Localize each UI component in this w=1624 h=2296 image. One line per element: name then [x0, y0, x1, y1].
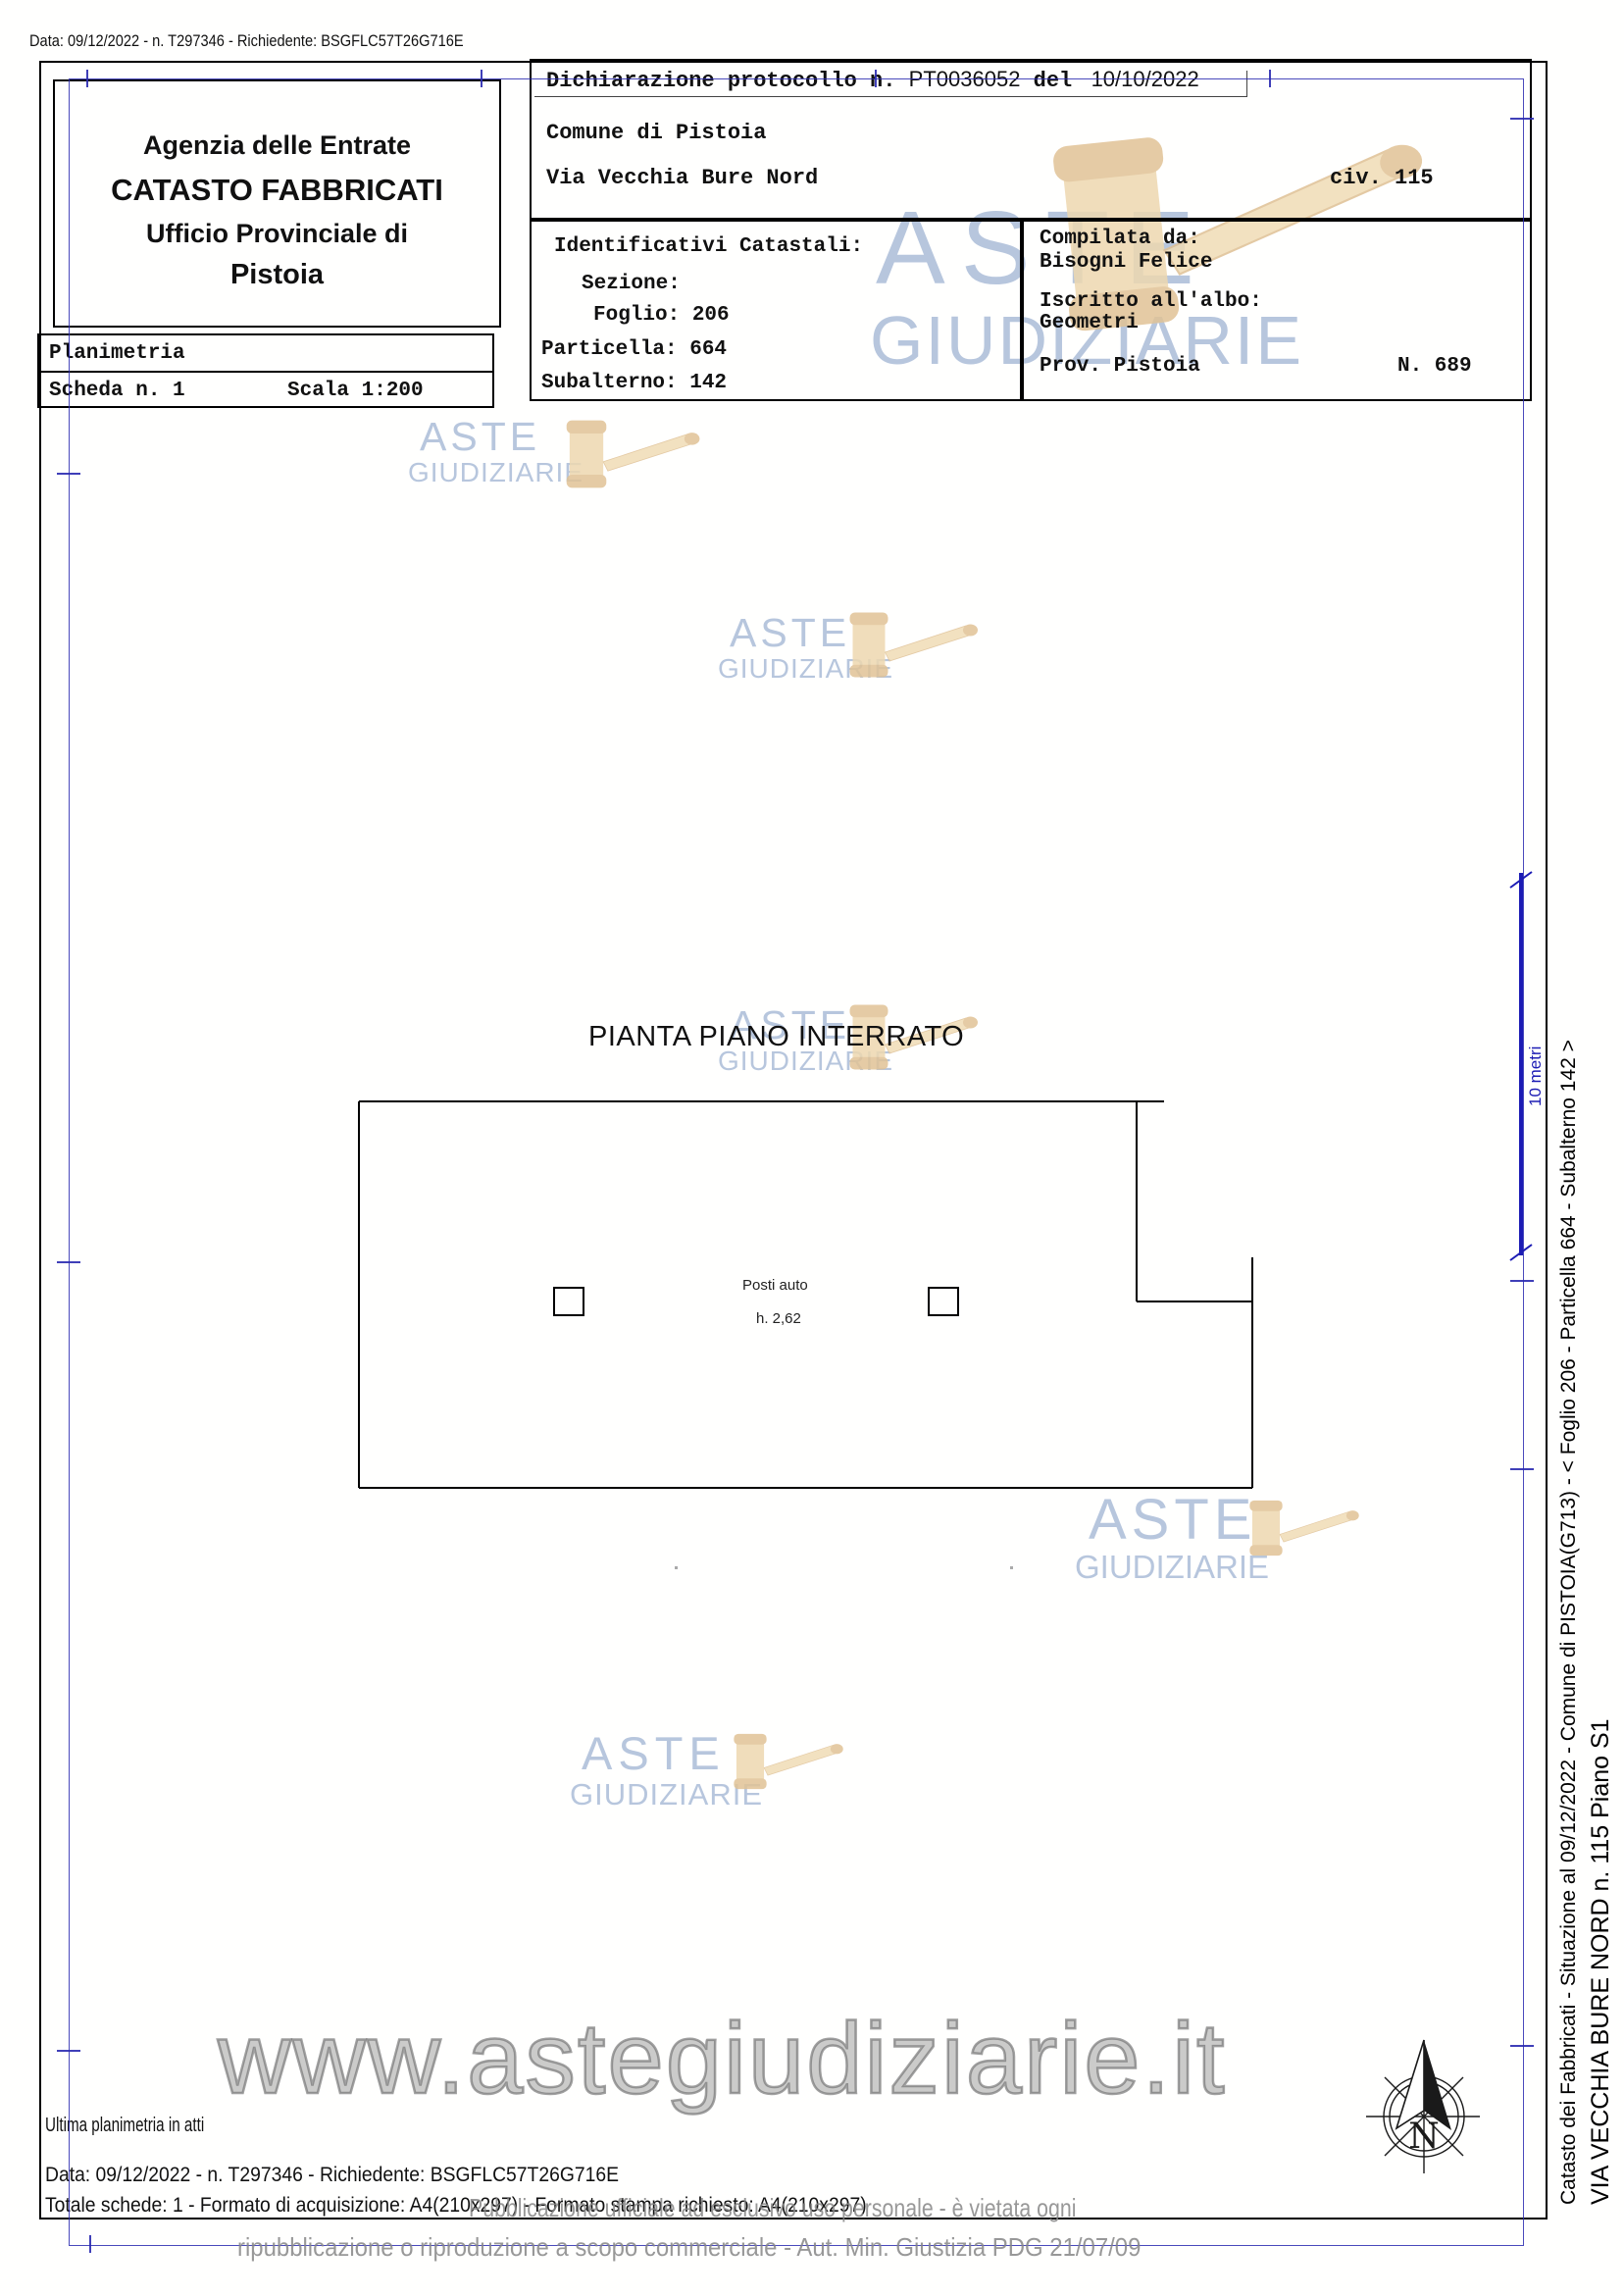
disclaimer-line-1: Pubblicazione ufficiale ad esclusivo uso…	[469, 2193, 1076, 2223]
top-request-line: Data: 09/12/2022 - n. T297346 - Richiede…	[29, 31, 464, 51]
scale-bar	[1519, 873, 1523, 1255]
registration-tick	[1510, 2045, 1534, 2047]
registration-tick	[57, 1261, 80, 1263]
registration-tick	[1510, 118, 1534, 120]
registration-tick	[57, 473, 80, 475]
sidebar-address-reference: VIA VECCHIA BURE NORD n. 115 Piano S1	[1587, 1718, 1615, 2205]
sheet-boundary	[69, 78, 1524, 2246]
registration-tick	[1269, 70, 1271, 87]
registration-tick	[57, 2050, 80, 2052]
registration-tick	[86, 70, 88, 87]
registration-tick	[875, 70, 877, 87]
registration-tick	[89, 2235, 91, 2253]
cadastral-document-page: Data: 09/12/2022 - n. T297346 - Richiede…	[0, 0, 1624, 2296]
registration-tick	[1510, 1468, 1534, 1470]
watermark-url: www.astegiudiziarie.it	[218, 2001, 1227, 2117]
scale-bar-label: 10 metri	[1526, 1046, 1546, 1106]
registration-tick	[481, 70, 482, 87]
registration-tick	[1510, 1280, 1534, 1282]
scale-bar-end-mark	[1507, 869, 1535, 891]
disclaimer-line-2: ripubblicazione o riproduzione a scopo c…	[237, 2232, 1141, 2263]
scale-bar-end-mark	[1507, 1242, 1535, 1263]
sidebar-cadastral-reference: Catasto dei Fabbricati - Situazione al 0…	[1557, 1040, 1581, 2205]
